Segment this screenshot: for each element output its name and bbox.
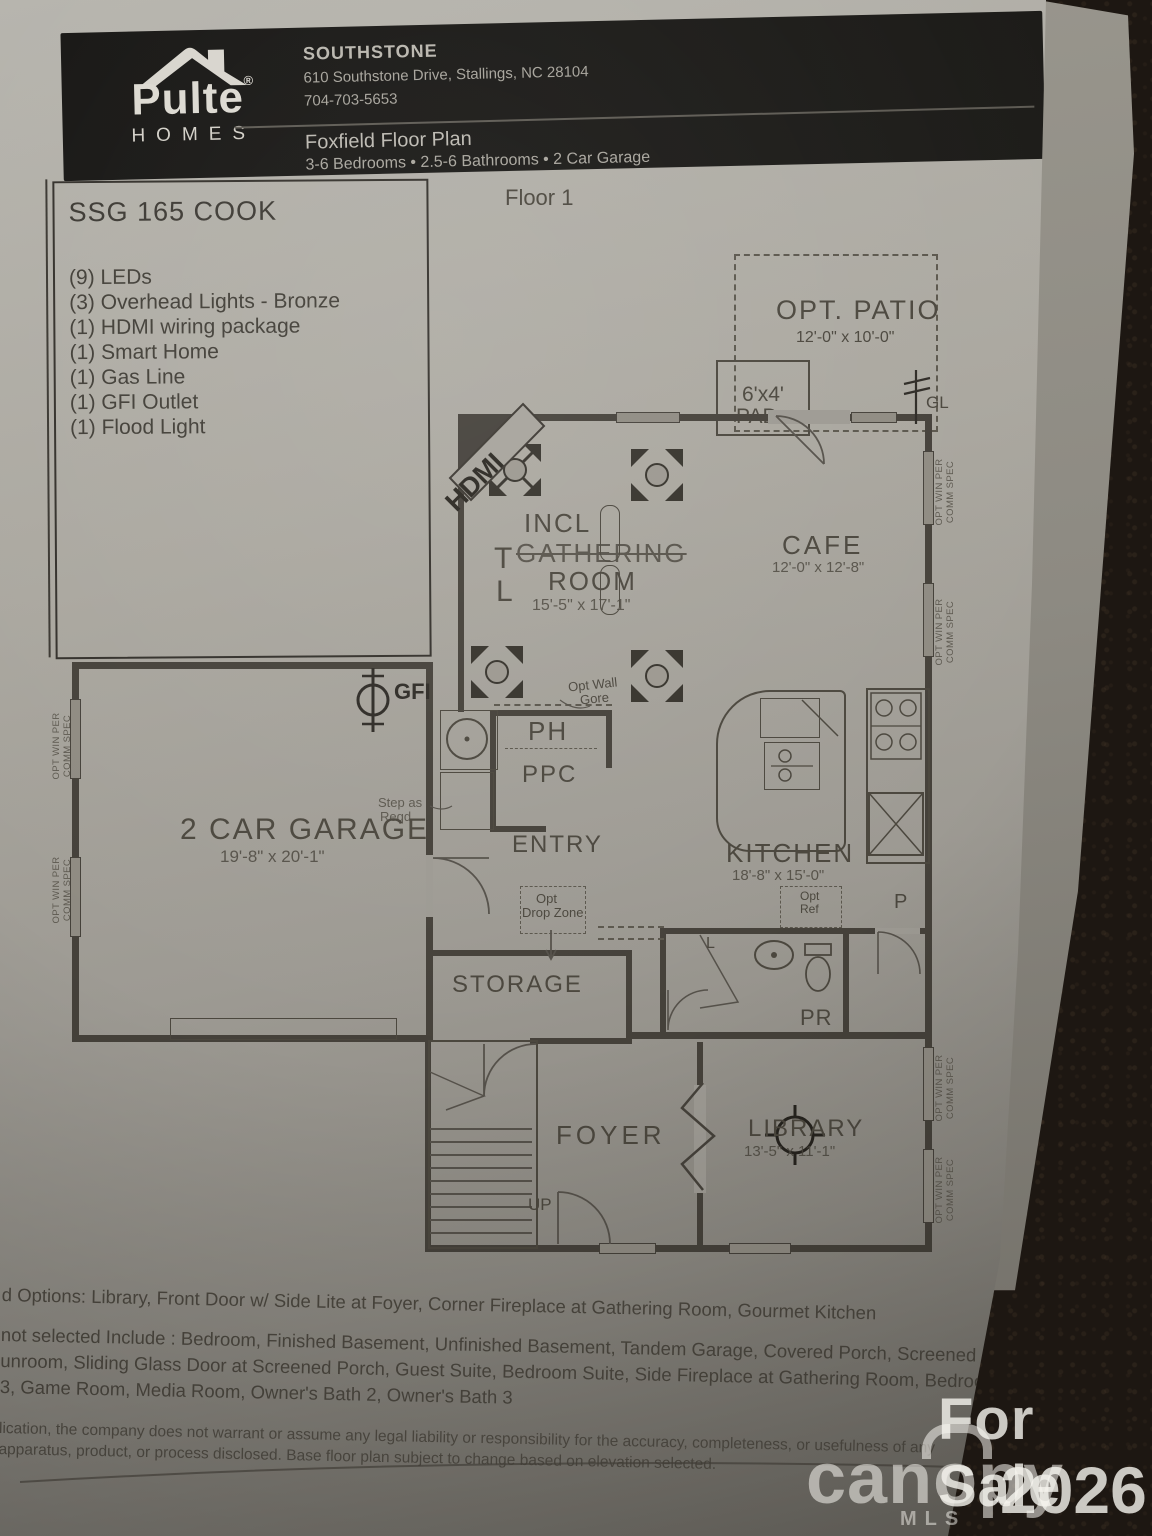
drop-zone-label: Opt [536,892,557,906]
canopy-arc-icon [922,1424,992,1459]
gas-line-symbol [904,370,930,424]
kitchen-label: KITCHEN [726,840,854,867]
step-label: Step as [378,796,422,810]
window-spec-label: OPT WIN PERCOMM SPEC [934,449,956,535]
window-spec-label: OPT WIN PERCOMM SPEC [51,703,73,789]
powder-room-label: PR [800,1006,833,1029]
t-marker: T [494,543,512,575]
pr-door [668,990,708,1030]
gathering-room-label: ROOM [548,568,637,595]
window-spec-label: OPT WIN PERCOMM SPEC [51,847,73,933]
entry-door [433,858,489,914]
front-door [558,1192,610,1244]
cooktop-diagonal [802,700,838,736]
drop-zone-label2: Drop Zone [522,906,583,920]
opt-ref-label2: Ref [800,903,819,916]
window-spec-label: OPT WIN PERCOMM SPEC [934,1045,956,1131]
drop-zone-arrow [546,930,556,959]
storage-label: STORAGE [452,972,583,997]
cafe-dims: 12'-0" x 12'-8" [772,560,864,576]
entry-label: ENTRY [512,832,603,857]
cafe-label: CAFE [782,532,863,559]
storage-door [484,1044,536,1096]
garage-dims: 19'-8" x 20'-1" [220,848,325,866]
ppc-label: PPC [522,762,577,787]
up-label: UP [528,1196,552,1214]
foyer-label: FOYER [556,1122,666,1149]
door-sidelite-zigzag [682,1083,714,1190]
linen-label: L [706,936,715,953]
step-label2: Reqd [380,810,411,824]
opt-wall-label2: Gore [579,691,609,708]
opt-ref-label: Opt [800,890,819,903]
step-leader [430,806,452,809]
incl-label: INCL [524,510,591,537]
pantry-door [878,932,920,974]
pantry-label: P [894,892,907,913]
ph-label: PH [528,718,568,745]
l-marker: L [496,576,513,608]
gathering-dims: 15'-5" x 17'-1" [532,598,630,615]
paper-sheet: Pulte® HOMES SOUTHSTONE 610 Southstone D… [0,0,1152,1536]
gfi-label: GFI [394,680,431,703]
mls-watermark: MLS [900,1508,966,1531]
library-label: LIBRARY [748,1116,864,1141]
kitchen-dims: 18'-8" x 15'-0" [732,868,824,884]
gathering-label: GATHERING [516,540,687,567]
photo-of-floor-plan-page: Pulte® HOMES SOUTHSTONE 610 Southstone D… [0,0,1152,1536]
library-dims: 13'-5" x 11'-1" [744,1144,835,1160]
window-spec-label: OPT WIN PERCOMM SPEC [934,1147,956,1233]
patio-door [776,416,824,464]
window-spec-label: OPT WIN PERCOMM SPEC [934,589,956,675]
stair-break-line [430,1072,484,1110]
